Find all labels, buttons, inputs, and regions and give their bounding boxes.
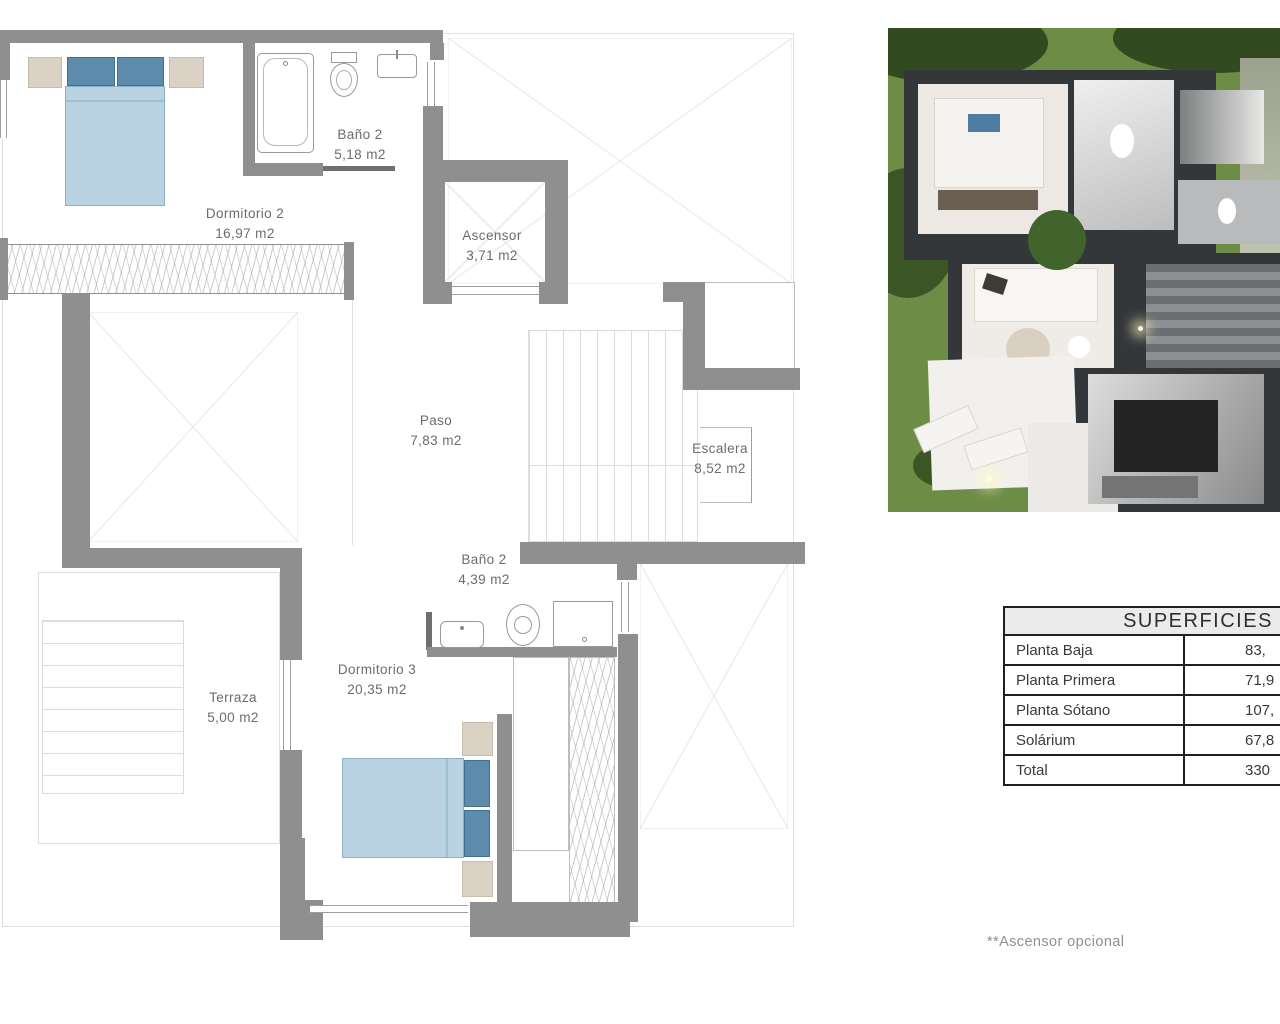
window-right-upper bbox=[427, 62, 435, 106]
small-room-outline bbox=[700, 282, 795, 370]
table-row: Planta Sótano 107, bbox=[1005, 696, 1280, 726]
row-value: 330 bbox=[1185, 756, 1280, 784]
room-name: Baño 2 bbox=[461, 552, 506, 567]
bed-fold-line bbox=[66, 100, 164, 102]
room-area: 4,39 m2 bbox=[458, 572, 510, 587]
wall-mid-bottom bbox=[62, 548, 302, 568]
wall-mid-left bbox=[62, 293, 90, 562]
wall-void-bottom bbox=[683, 368, 800, 390]
nightstand bbox=[462, 722, 493, 756]
elevator-wall-bottom-left bbox=[423, 282, 452, 304]
wall-wardrobe3-left bbox=[497, 714, 512, 910]
sink-faucet bbox=[396, 50, 398, 59]
bathtub-faucet bbox=[283, 61, 288, 66]
bed-pillow bbox=[117, 57, 164, 86]
wall-bed3-bottom bbox=[470, 902, 630, 937]
room-name: Terraza bbox=[209, 690, 257, 705]
stair-area bbox=[1146, 264, 1280, 368]
wall-bath3-bottom bbox=[427, 647, 617, 657]
wardrobe3-interior bbox=[513, 657, 569, 851]
wardrobe-top-cap-left bbox=[0, 238, 8, 300]
window-below-notch bbox=[621, 582, 629, 632]
staircase-midline bbox=[528, 465, 698, 466]
wardrobe-top-cap-right bbox=[344, 242, 354, 300]
row-value: 107, bbox=[1185, 696, 1280, 724]
room-area: 16,97 m2 bbox=[215, 226, 275, 241]
terrace-pergola bbox=[42, 620, 184, 794]
wall-top-return bbox=[430, 43, 444, 60]
room-area: 7,83 m2 bbox=[410, 433, 462, 448]
paso-partition-line bbox=[352, 300, 353, 545]
room-name: Ascensor bbox=[462, 228, 521, 243]
row-value: 71,9 bbox=[1185, 666, 1280, 694]
room-name: Dormitorio 3 bbox=[338, 662, 416, 677]
room-name: Paso bbox=[420, 413, 452, 428]
garden-light bbox=[986, 476, 992, 482]
wall-left-stub bbox=[0, 30, 10, 80]
wall-top bbox=[0, 30, 443, 43]
wall-stairs-top bbox=[520, 542, 805, 564]
table-row: Planta Primera 71,9 bbox=[1005, 666, 1280, 696]
room-area: 3,71 m2 bbox=[466, 248, 518, 263]
room-area: 20,35 m2 bbox=[347, 682, 407, 697]
toilet bbox=[1218, 198, 1236, 224]
table-row: Total 330 bbox=[1005, 756, 1280, 784]
label-paso: Paso 7,83 m2 bbox=[410, 411, 462, 452]
room-area: 5,18 m2 bbox=[334, 147, 386, 162]
toilet-bowl-inner bbox=[336, 70, 352, 90]
nightstand bbox=[462, 861, 493, 897]
garden-light bbox=[1138, 326, 1143, 331]
rug bbox=[1102, 476, 1198, 498]
toilet-tank bbox=[331, 52, 357, 63]
room-mid-cross bbox=[88, 312, 298, 542]
shower-drain bbox=[582, 637, 587, 642]
label-ascensor: Ascensor 3,71 m2 bbox=[462, 226, 521, 267]
wall-wardrobe3-right bbox=[618, 634, 638, 922]
row-label: Solárium bbox=[1005, 726, 1185, 754]
page: { "floor_plan": { "rooms": [ {"name": "D… bbox=[0, 0, 1280, 1024]
dark-bed bbox=[1114, 400, 1218, 472]
nightstand bbox=[28, 57, 62, 88]
bath3-door-jamb bbox=[426, 612, 432, 650]
indoor-plant bbox=[1028, 210, 1086, 270]
room-area: 8,52 m2 bbox=[694, 461, 746, 476]
void-area-bottom-cross bbox=[640, 563, 788, 829]
elevator-door bbox=[452, 286, 539, 295]
row-value: 83, bbox=[1185, 636, 1280, 664]
wall-stairs-notch bbox=[617, 564, 637, 580]
label-bano2-mid: Baño 2 4,39 m2 bbox=[458, 550, 510, 591]
label-dormitorio2: Dormitorio 2 16,97 m2 bbox=[206, 204, 284, 245]
footnote-ascensor-opcional: **Ascensor opcional bbox=[987, 934, 1124, 950]
window-terrace bbox=[283, 660, 291, 750]
room-name: Baño 2 bbox=[337, 127, 382, 142]
room-area: 5,00 m2 bbox=[207, 710, 259, 725]
bath-door-leaf bbox=[323, 166, 395, 171]
bed bbox=[934, 98, 1044, 188]
table-row: Solárium 67,8 bbox=[1005, 726, 1280, 756]
room-name: Dormitorio 2 bbox=[206, 206, 284, 221]
window-left bbox=[0, 80, 7, 138]
wall-void-stub bbox=[663, 282, 705, 302]
row-label: Planta Baja bbox=[1005, 636, 1185, 664]
nightstand bbox=[169, 57, 204, 88]
bathtub-inner bbox=[263, 58, 308, 146]
toilet bbox=[1110, 124, 1134, 158]
wall-bath-bottom bbox=[243, 163, 323, 176]
bed-dormitorio2 bbox=[65, 86, 165, 206]
wall-bath-divider bbox=[243, 43, 255, 165]
table-row: Planta Baja 83, bbox=[1005, 636, 1280, 666]
wardrobe-top bbox=[4, 244, 348, 294]
label-escalera: Escalera 8,52 m2 bbox=[692, 439, 748, 480]
label-dormitorio3: Dormitorio 3 20,35 m2 bbox=[338, 660, 416, 701]
wall-right-upper bbox=[423, 106, 443, 162]
row-label: Planta Primera bbox=[1005, 666, 1185, 694]
elevator-wall-top bbox=[423, 160, 568, 182]
row-label: Planta Sótano bbox=[1005, 696, 1185, 724]
toilet-bowl-inner bbox=[514, 616, 532, 634]
surfaces-table-title: SUPERFICIES bbox=[1005, 608, 1280, 636]
wall-terrace-right-bottom bbox=[280, 750, 302, 840]
hallway-floor bbox=[1180, 90, 1264, 164]
wall-void-vert bbox=[683, 302, 705, 368]
bed-pillow bbox=[464, 760, 490, 807]
label-terraza: Terraza 5,00 m2 bbox=[207, 688, 259, 729]
row-label: Total bbox=[1005, 756, 1185, 784]
wall-terrace-right-top bbox=[280, 568, 302, 660]
sink-faucet-dot bbox=[460, 626, 464, 630]
row-value: 67,8 bbox=[1185, 726, 1280, 754]
dresser bbox=[938, 190, 1038, 210]
room-name: Escalera bbox=[692, 441, 748, 456]
bed-pillow bbox=[464, 810, 490, 857]
render-3d-view bbox=[888, 28, 1280, 512]
label-bano2-top: Baño 2 5,18 m2 bbox=[334, 125, 386, 166]
staircase bbox=[528, 330, 698, 542]
bed-pillow bbox=[968, 114, 1000, 132]
floor-plan: Dormitorio 2 16,97 m2 Baño 2 5,18 m2 Asc… bbox=[0, 0, 800, 1024]
surfaces-table: SUPERFICIES Planta Baja 83, Planta Prime… bbox=[1003, 606, 1280, 786]
bed-pillow bbox=[67, 57, 115, 86]
wardrobe3-hatch bbox=[569, 657, 615, 903]
bed-fold-line bbox=[446, 759, 448, 857]
window-bed3 bbox=[310, 905, 468, 913]
elevator-wall-bottom-right bbox=[539, 282, 568, 304]
